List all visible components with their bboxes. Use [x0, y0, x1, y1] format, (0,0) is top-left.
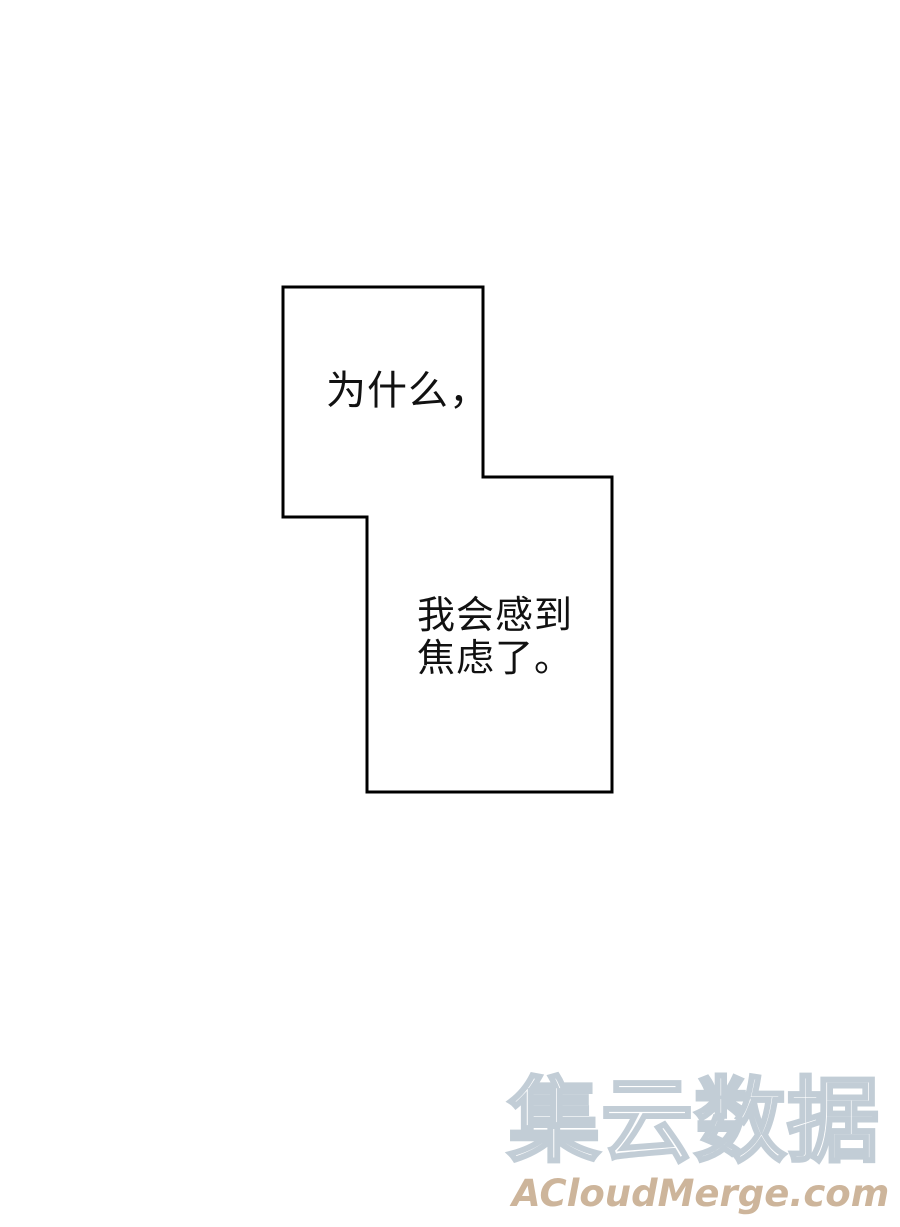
watermark-site-url: ACloudMerge.com [512, 1174, 889, 1214]
speech-text-anxious-line2: 焦虑了。 [417, 638, 573, 680]
speech-text-anxious: 我会感到 焦虑了。 [417, 595, 573, 681]
comic-page: 为什么， 我会感到 焦虑了。 集云数据 ACloudMerge.com [0, 0, 900, 1227]
speech-bubble-shape [283, 287, 612, 792]
speech-text-anxious-line1: 我会感到 [417, 595, 573, 637]
speech-text-why: 为什么， [326, 368, 490, 414]
watermark-chinese-logo: 集云数据 [508, 1072, 880, 1172]
